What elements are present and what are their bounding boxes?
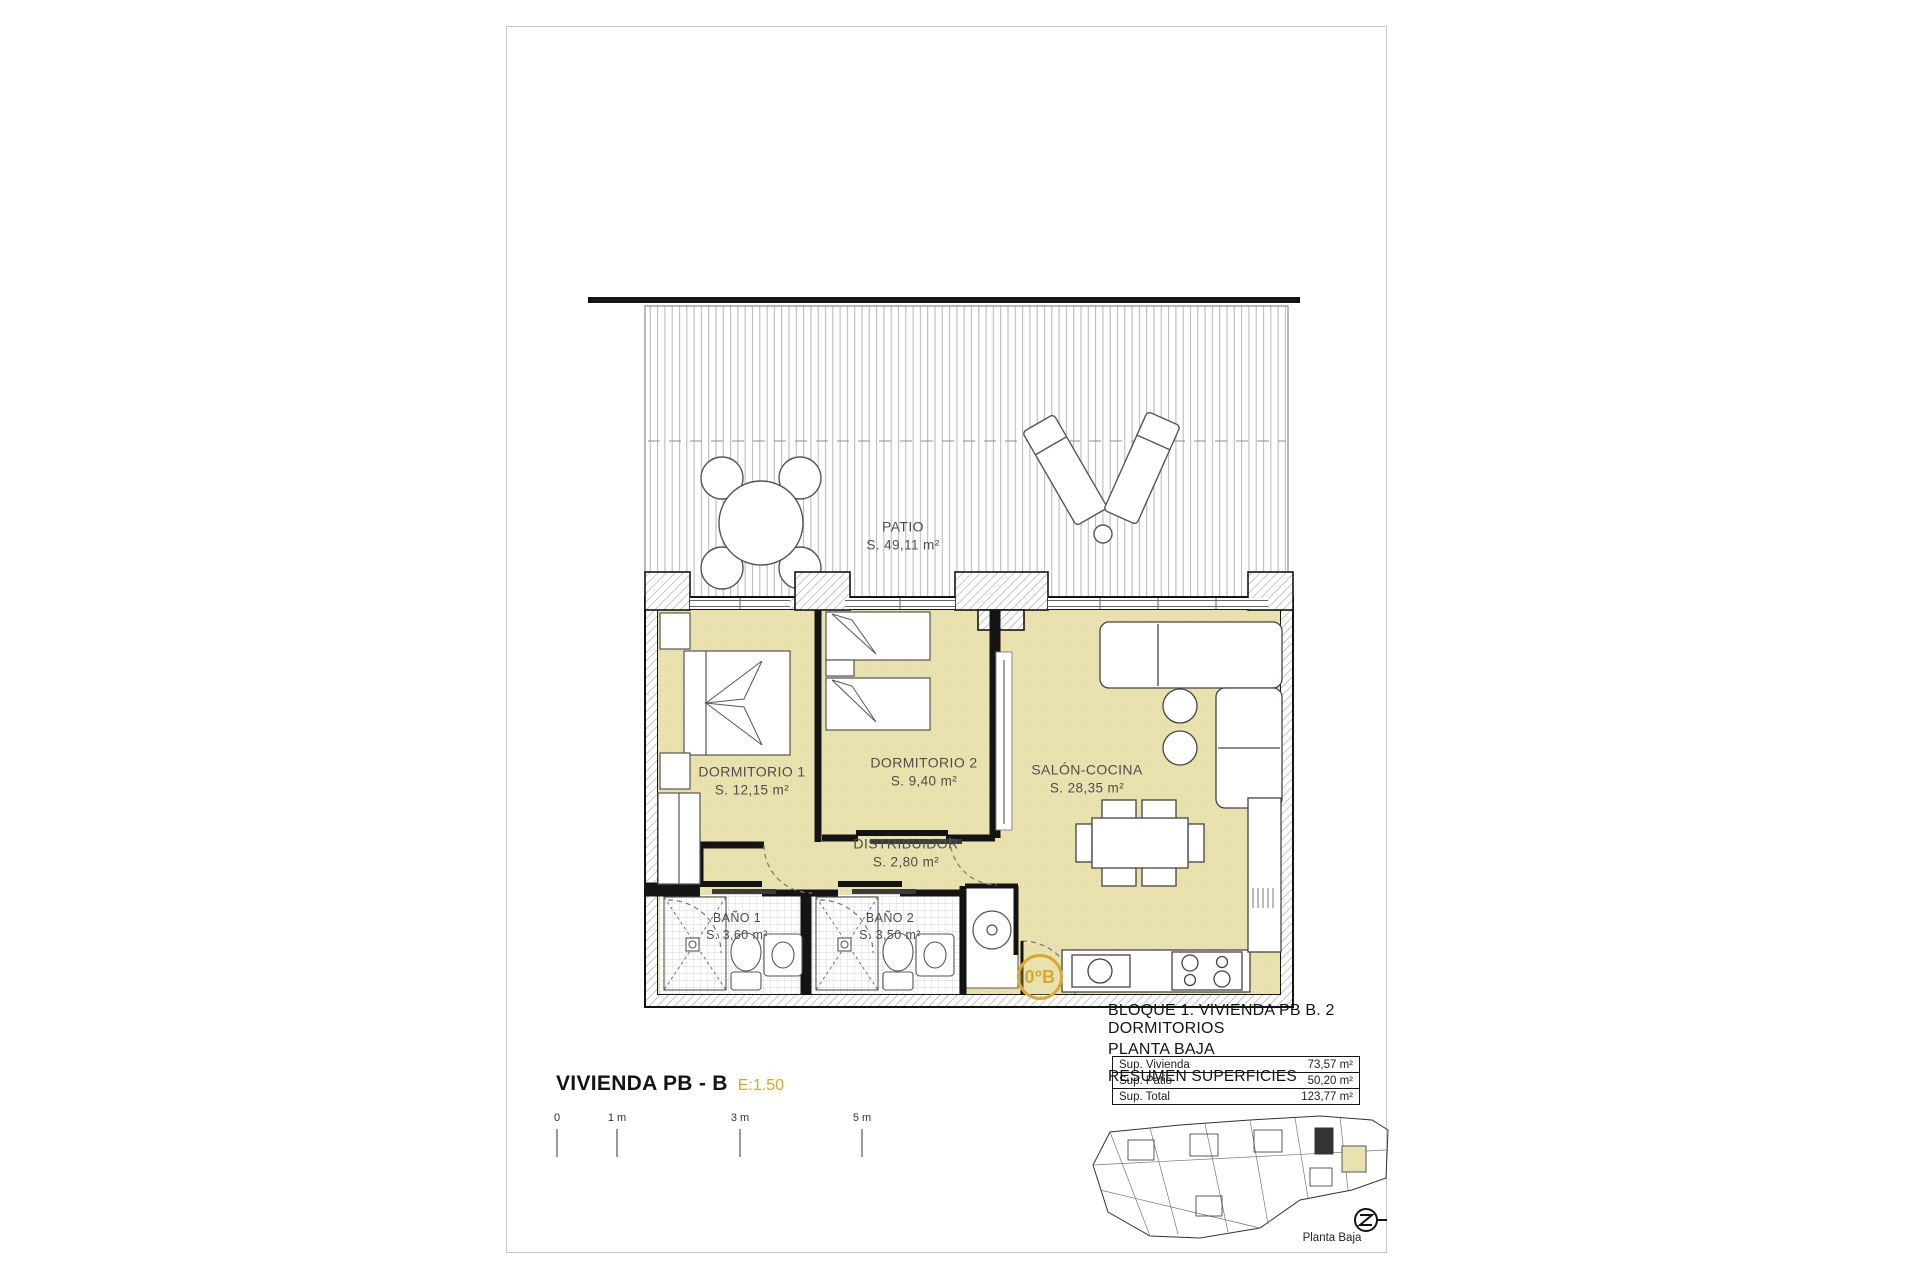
- plan-scale: E:1.50: [738, 1077, 784, 1094]
- entry-unit-label: 0ºB: [1024, 967, 1055, 988]
- room-label-dormitorio2: DORMITORIO 2 S. 9,40 m²: [870, 753, 977, 790]
- floor-plan-drawing: [0, 0, 1920, 1280]
- plan-title: VIVIENDA PB - B: [556, 1072, 728, 1095]
- sofa-icon: [1100, 622, 1282, 688]
- surface-summary-table: Sup. Vivienda 73,57 m² Sup. Patio 50,20 …: [1112, 1056, 1360, 1105]
- entry-unit-badge: 0ºB: [1017, 954, 1063, 1000]
- double-bed-icon: [684, 651, 790, 755]
- pouf-icon: [1163, 689, 1197, 723]
- plan-caption: VIVIENDA PB - BE:1.50: [556, 1072, 784, 1096]
- room-name: PATIO: [882, 518, 924, 534]
- chair-icon: [1142, 800, 1176, 820]
- table-row: Sup. Vivienda 73,57 m²: [1113, 1057, 1360, 1073]
- key-plan-caption: Planta Baja: [1303, 1232, 1362, 1244]
- scale-tick-label: 1 m: [608, 1112, 626, 1124]
- room-area: S. 3,60 m²: [706, 927, 768, 944]
- room-label-salon-cocina: SALÓN-COCINA S. 28,35 m²: [1031, 760, 1142, 797]
- room-label-distribuidor: DISTRIBUIDOR S. 2,80 m²: [853, 834, 958, 871]
- room-area: S. 9,40 m²: [870, 772, 977, 790]
- chair-icon: [1188, 824, 1204, 862]
- room-name: SALÓN-COCINA: [1031, 761, 1142, 777]
- room-area: S. 12,15 m²: [698, 781, 805, 799]
- chair-icon: [1142, 866, 1176, 886]
- room-label-bano1: BAÑO 1 S. 3,60 m²: [706, 910, 768, 944]
- table-row-label: Sup. Total: [1113, 1089, 1252, 1105]
- table-row-value: 50,20 m²: [1252, 1073, 1360, 1089]
- stove-icon: [1172, 952, 1242, 990]
- patio-area: [588, 297, 1300, 597]
- table-row-label: Sup. Patio: [1113, 1073, 1252, 1089]
- room-area: S. 28,35 m²: [1031, 779, 1142, 797]
- scale-bar-ticks: [557, 1129, 862, 1157]
- room-label-dormitorio1: DORMITORIO 1 S. 12,15 m²: [698, 762, 805, 799]
- room-name: DORMITORIO 2: [870, 754, 977, 770]
- table-row-value: 73,57 m²: [1252, 1057, 1360, 1073]
- key-plan: [1093, 1116, 1388, 1238]
- patio-top-wall: [588, 297, 1300, 303]
- kitchen-cabinet-icon: [1248, 798, 1281, 952]
- room-area: S. 49,11 m²: [866, 536, 939, 554]
- scale-tick-label: 0: [554, 1112, 560, 1124]
- room-name: BAÑO 1: [713, 911, 761, 925]
- washing-machine-icon: [973, 911, 1011, 949]
- sink-icon: [1088, 959, 1112, 983]
- table-row: Sup. Patio 50,20 m²: [1113, 1073, 1360, 1089]
- washbasin-icon: [764, 934, 802, 976]
- single-bed-icon: [826, 612, 930, 660]
- room-name: BAÑO 2: [866, 911, 914, 925]
- north-arrow-icon: [1355, 1209, 1387, 1231]
- chair-icon: [1076, 824, 1092, 862]
- nightstand-icon: [660, 613, 690, 649]
- nightstand-icon: [826, 660, 854, 676]
- chair-icon: [1102, 866, 1136, 886]
- table-row-label: Sup. Vivienda: [1113, 1057, 1252, 1073]
- table-row-value: 123,77 m²: [1252, 1089, 1360, 1105]
- room-label-patio: PATIO S. 49,11 m²: [866, 517, 939, 554]
- scale-tick-label: 5 m: [853, 1112, 871, 1124]
- title-block-project-line: BLOQUE 1. VIVIENDA PB B. 2 DORMITORIOS: [1108, 1002, 1368, 1038]
- washbasin-icon: [916, 934, 954, 976]
- chair-icon: [1102, 800, 1136, 820]
- floor-plan-sheet-page: { "rooms": { "patio": {"name": "PATIO", …: [0, 0, 1920, 1280]
- sliding-glass-door-icon: [996, 652, 1012, 830]
- room-name: DISTRIBUIDOR: [853, 835, 958, 851]
- room-name: DORMITORIO 1: [698, 763, 805, 779]
- table-row: Sup. Total 123,77 m²: [1113, 1089, 1360, 1105]
- room-area: S. 3,50 m²: [859, 927, 921, 944]
- single-bed-icon: [826, 678, 930, 730]
- dining-table-icon: [1092, 818, 1188, 868]
- nightstand-icon: [660, 753, 690, 789]
- key-plan-highlighted-unit: [1342, 1146, 1366, 1172]
- scale-tick-label: 3 m: [731, 1112, 749, 1124]
- room-area: S. 2,80 m²: [853, 853, 958, 871]
- room-label-bano2: BAÑO 2 S. 3,50 m²: [859, 910, 921, 944]
- pouf-icon: [1163, 731, 1197, 765]
